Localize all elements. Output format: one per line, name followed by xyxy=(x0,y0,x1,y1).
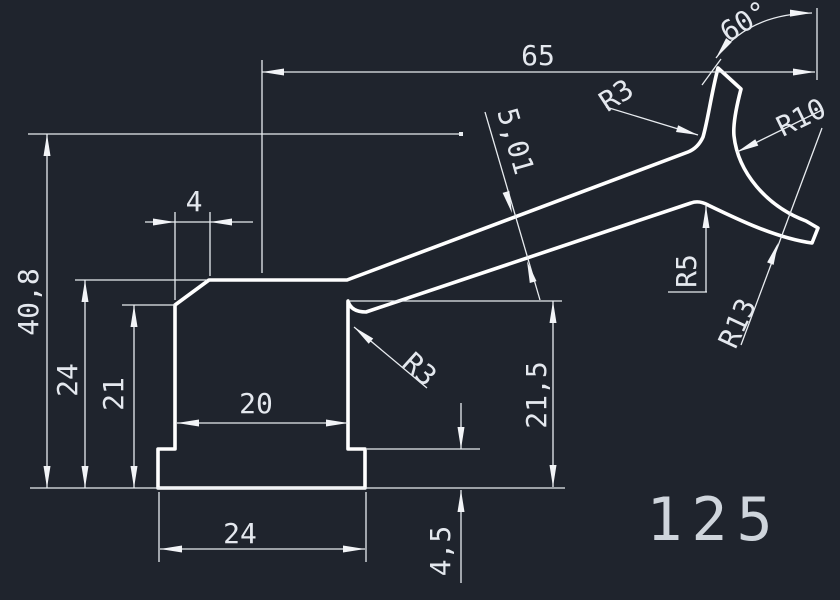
dim-text-65: 65 xyxy=(521,39,555,72)
arrow-4-5-top xyxy=(458,427,465,449)
dim-text-21-5: 21,5 xyxy=(520,361,553,428)
arrow-r3-top xyxy=(676,125,698,135)
arrow-20-left xyxy=(177,420,199,427)
dim-text-5-01: 5,01 xyxy=(490,104,540,178)
arrow-r5 xyxy=(703,206,710,228)
arrow-4-left xyxy=(153,219,175,226)
arrow-21-5-bottom xyxy=(550,465,557,487)
arrow-21-top xyxy=(131,305,138,327)
arrow-5-01-top xyxy=(503,191,512,213)
technical-drawing: 65 60° R3 R10 5,01 4 40,8 24 21 R3 21,5 … xyxy=(0,0,840,600)
dim-text-60deg: 60° xyxy=(714,0,774,49)
arrow-24-bottom xyxy=(82,466,89,488)
dim-text-r10: R10 xyxy=(771,92,831,144)
dim-text-24-base: 24 xyxy=(223,517,257,550)
dim-text-21: 21 xyxy=(97,377,130,411)
arrow-40-8-bottom xyxy=(44,466,51,488)
arrow-65-right xyxy=(793,69,815,76)
arrow-r10 xyxy=(737,139,758,152)
ext-endpoint-dot xyxy=(459,132,463,136)
profile-outline xyxy=(158,68,818,488)
arrow-4-5-bottom xyxy=(458,490,465,512)
dim-text-r3-bottom: R3 xyxy=(396,346,443,393)
drawing-number: 125 xyxy=(646,485,781,555)
arrow-24-top xyxy=(82,280,89,302)
arrow-24b-right xyxy=(343,546,365,553)
arrow-r13 xyxy=(767,243,778,265)
arrow-4-right xyxy=(210,219,232,226)
arrow-r3-bottom xyxy=(354,327,373,344)
arrow-5-01-bottom xyxy=(527,261,537,283)
dim-text-r5: R5 xyxy=(670,254,703,288)
dim-text-4: 4 xyxy=(186,185,203,218)
arrow-40-8-top xyxy=(44,134,51,156)
arrow-65-left xyxy=(262,69,284,76)
dim-text-r13: R13 xyxy=(712,293,763,353)
arrow-24b-left xyxy=(160,546,182,553)
dim-text-r3-top: R3 xyxy=(593,72,639,118)
dim-text-24-left: 24 xyxy=(51,363,84,397)
dim-text-20: 20 xyxy=(239,387,273,420)
arrow-21-5-top xyxy=(550,301,557,323)
arrow-21-bottom xyxy=(131,466,138,488)
arrow-20-right xyxy=(326,420,348,427)
dim-text-40-8: 40,8 xyxy=(12,268,45,335)
cad-viewport[interactable]: 65 60° R3 R10 5,01 4 40,8 24 21 R3 21,5 … xyxy=(0,0,840,600)
dim-text-4-5: 4,5 xyxy=(424,526,457,577)
arrow-60-upper xyxy=(790,10,812,17)
